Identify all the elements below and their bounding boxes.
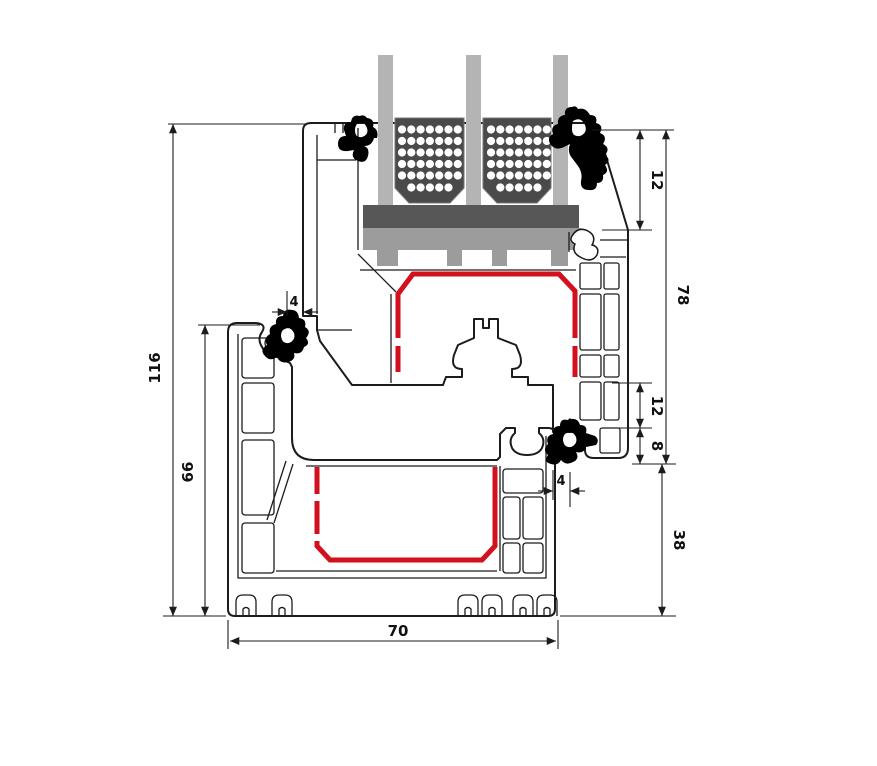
dim-label-78: 78 <box>674 285 692 306</box>
glazing-unit <box>363 55 599 266</box>
bridge-support-tab <box>377 250 398 266</box>
bridge-support-tab <box>447 250 462 266</box>
glazing-bridge <box>363 228 581 250</box>
glazing-block <box>363 205 579 228</box>
bridge-support-tab <box>551 250 568 266</box>
dim-label-70: 70 <box>388 622 409 640</box>
frame-outer-gasket <box>262 310 308 363</box>
dim-label-12-mid: 12 <box>648 396 666 417</box>
window-profile-diagram: 116 66 12 78 12 8 38 4 4 70 <box>0 0 877 766</box>
dim-label-4-right: 4 <box>556 474 565 489</box>
dim-label-116: 116 <box>146 352 164 383</box>
dim-label-38: 38 <box>670 530 688 551</box>
dim-label-66: 66 <box>179 462 197 483</box>
diagram-canvas: 116 66 12 78 12 8 38 4 4 70 <box>0 0 877 766</box>
dim-label-12-top: 12 <box>648 170 666 191</box>
bridge-support-tab <box>492 250 507 266</box>
dim-label-4-left: 4 <box>289 295 298 310</box>
sash-profile-outline <box>303 123 628 458</box>
dim-label-8: 8 <box>648 441 666 451</box>
